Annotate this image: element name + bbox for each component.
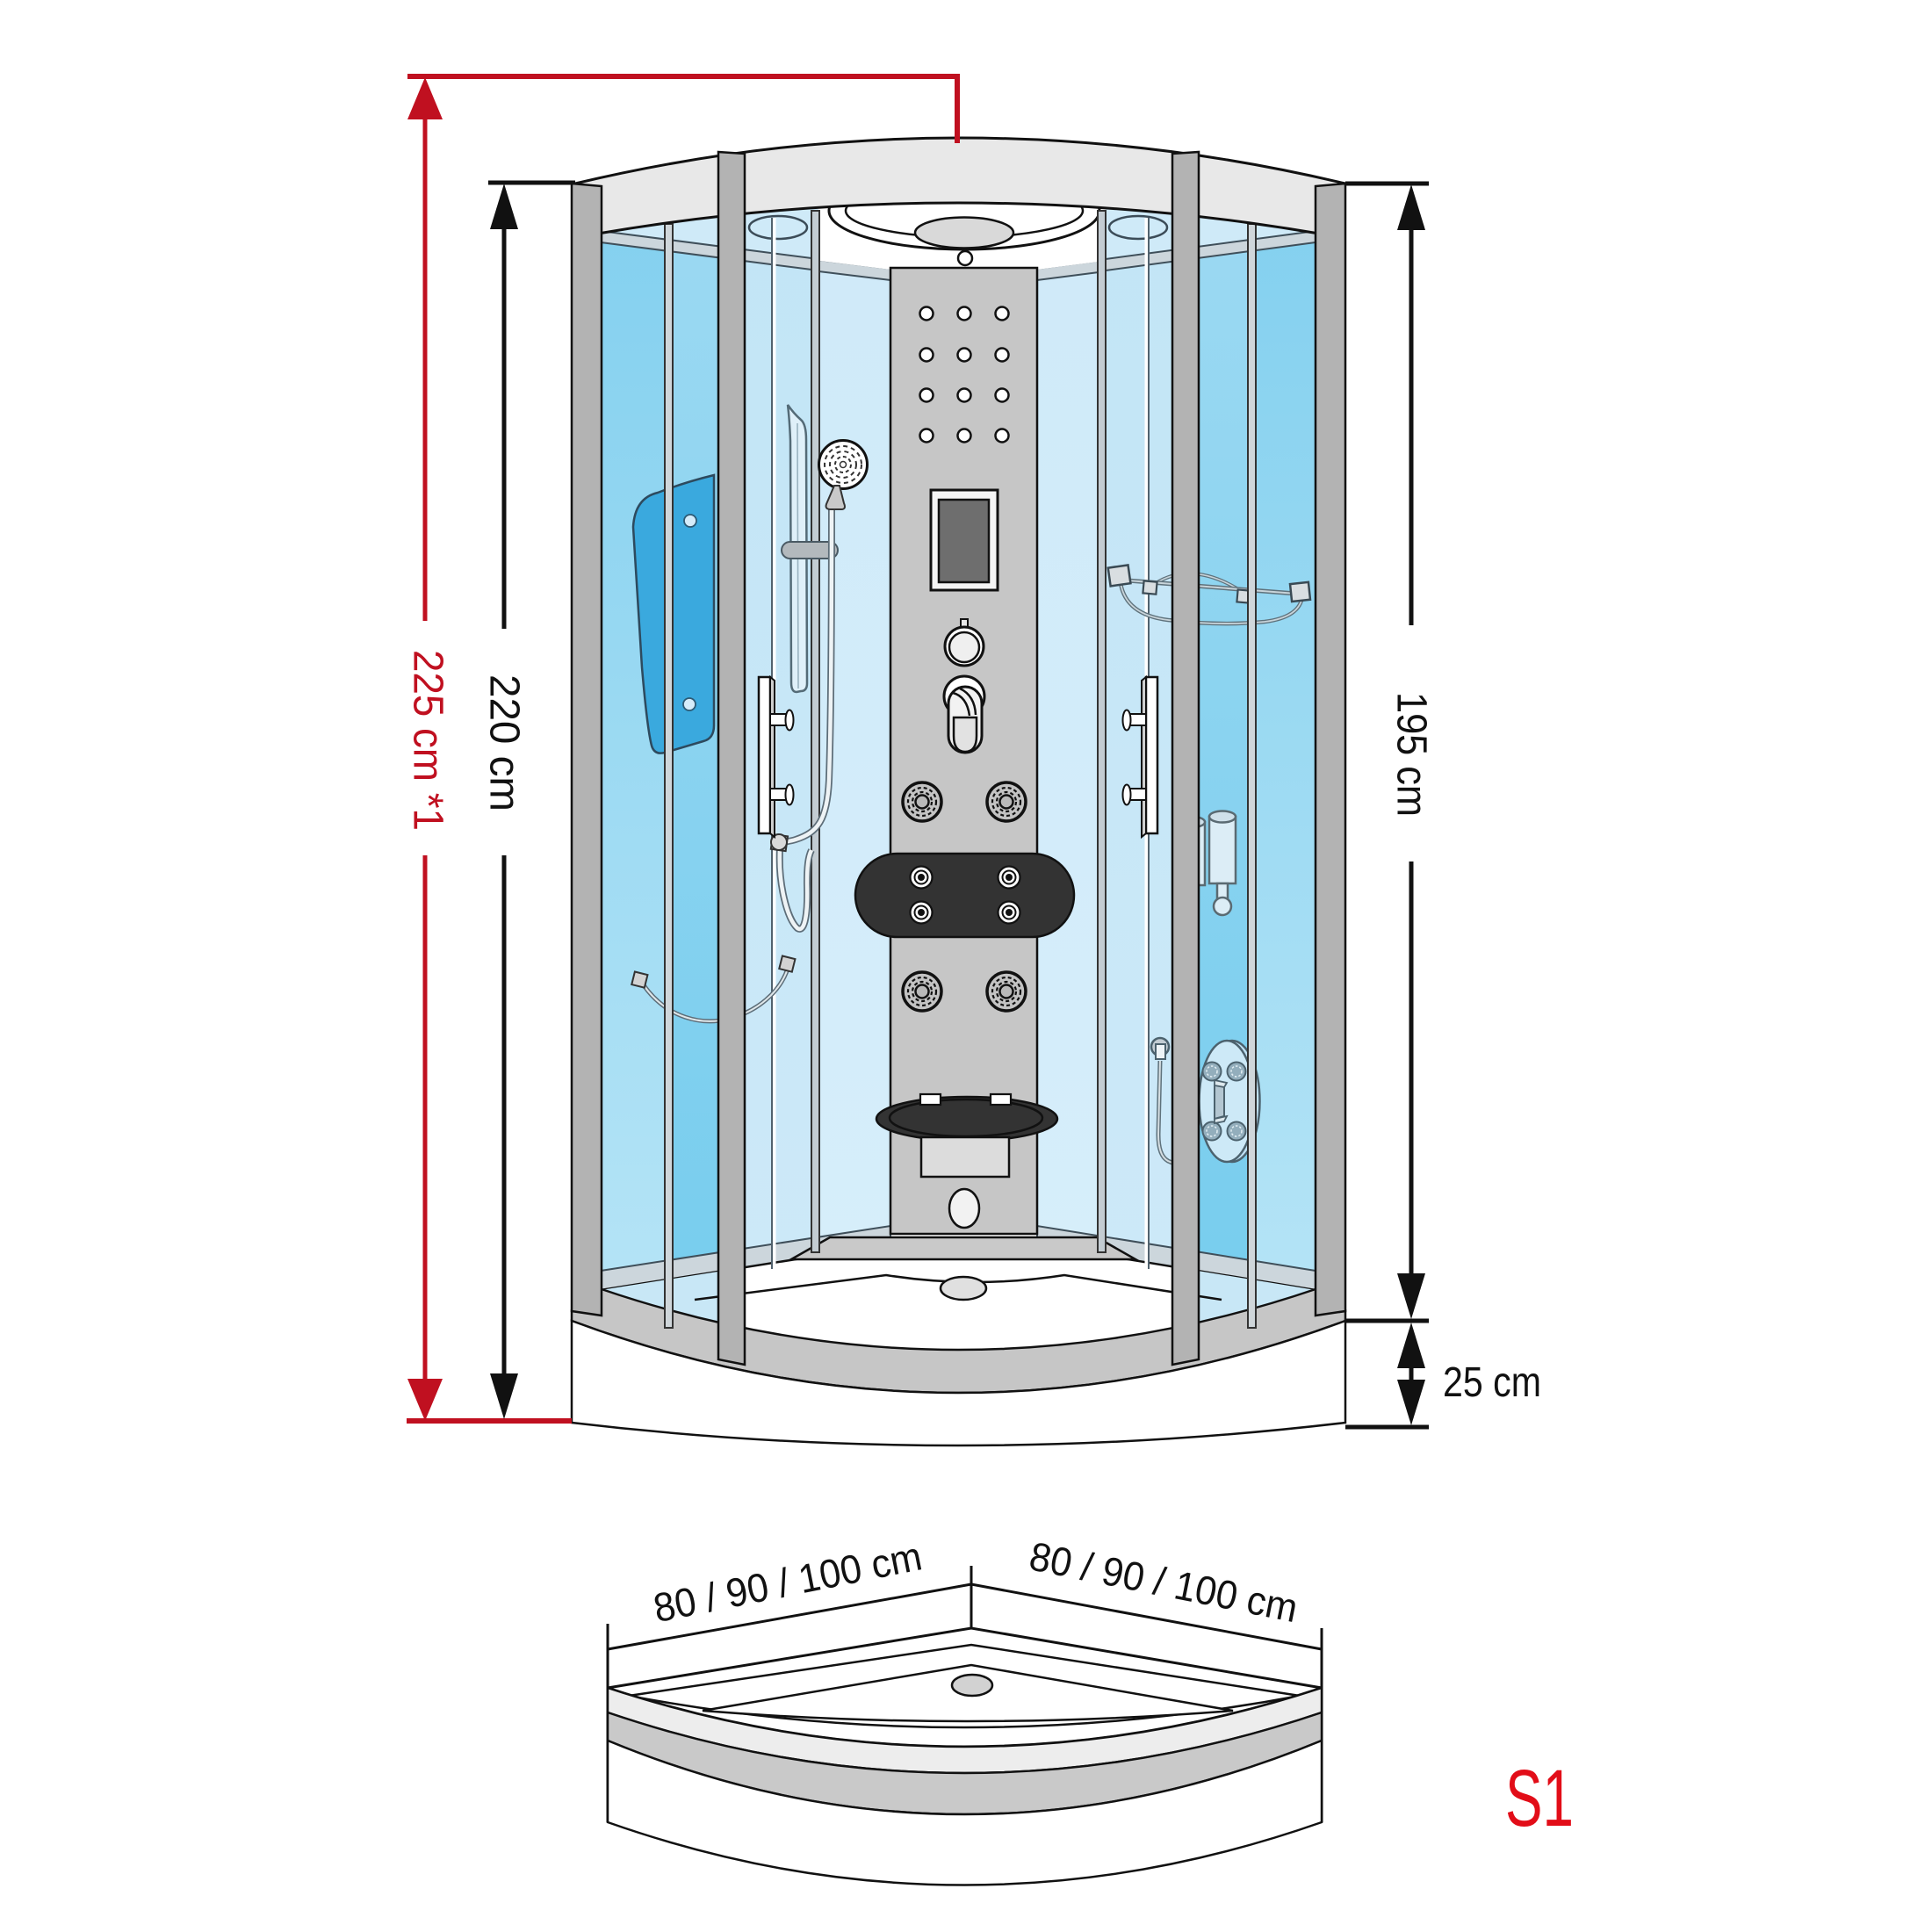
svg-text:S1: S1 [1505, 1754, 1574, 1843]
svg-text:25 cm: 25 cm [1443, 1359, 1541, 1406]
svg-text:195 cm: 195 cm [1388, 692, 1435, 817]
svg-text:220 cm: 220 cm [481, 674, 528, 811]
svg-text:225 cm *1: 225 cm *1 [405, 650, 451, 831]
